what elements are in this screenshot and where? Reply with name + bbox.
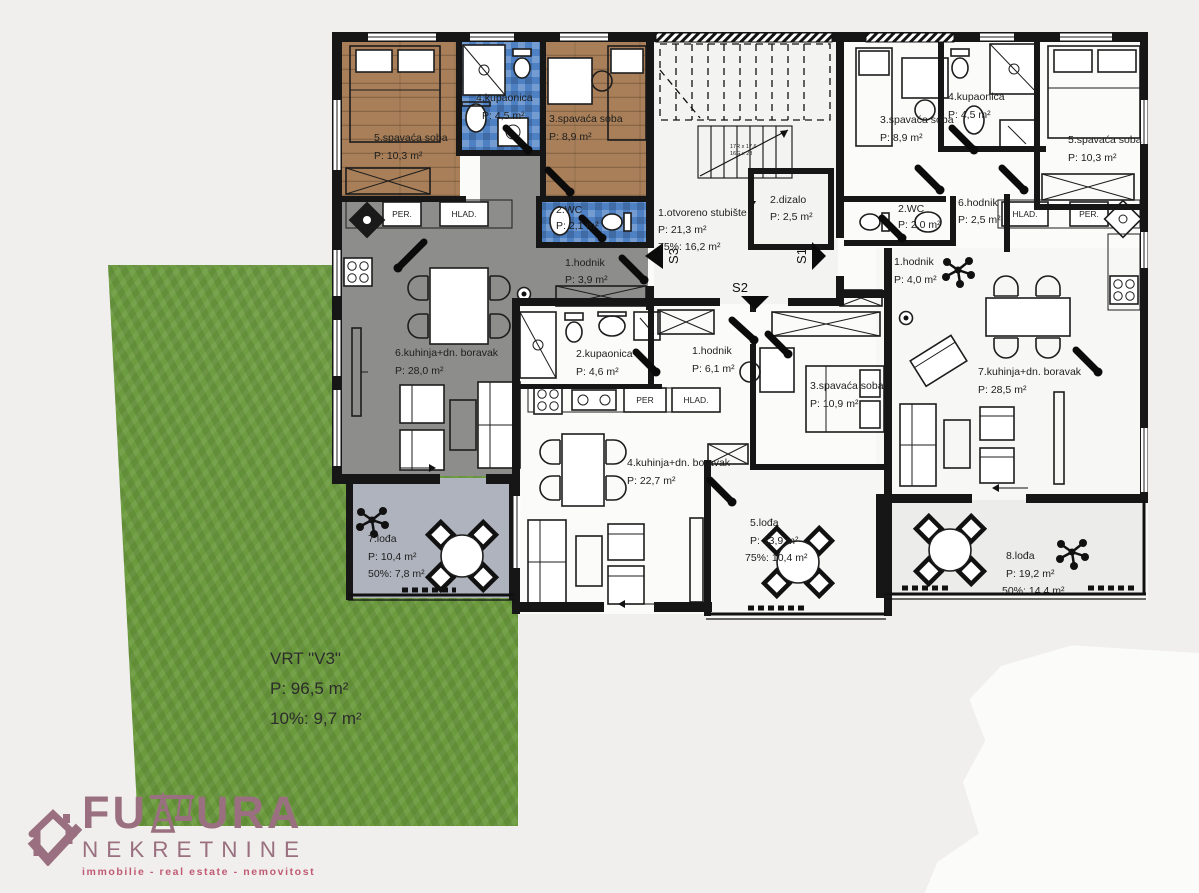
room-c1-area: P: 4,0 m² [894, 274, 937, 286]
toilet-icon [602, 213, 631, 231]
washer-icon [634, 312, 660, 340]
garden-label: VRT "V3" P: 96,5 m² 10%: 9,7 m² [270, 649, 362, 728]
room-c2-area: P: 2,0 m² [898, 219, 941, 231]
garden-area: P: 96,5 m² [270, 679, 349, 698]
logo-text: FU URA NEKRETNINE immobilie - real estat… [82, 790, 315, 878]
room-s1-pct: 75%: 16,2 m² [658, 241, 721, 253]
room-c6-area: P: 2,5 m² [958, 214, 1001, 226]
room-b5-area: P: 13,9 m² [750, 535, 799, 547]
room-a6-area: P: 28,0 m² [395, 365, 444, 377]
room-s1-name: 1.otvoreno stubište [658, 207, 747, 219]
room-a7-name: 7.lođa [368, 533, 397, 545]
room-b3-area: P: 10,9 m² [810, 398, 859, 410]
room-s2-name: 2.dizalo [770, 194, 806, 206]
brand-name: FU URA [82, 790, 315, 835]
armchair-icon [980, 448, 1014, 483]
s2-label: S2 [732, 280, 748, 295]
window-icon [334, 100, 341, 170]
armchair-icon [400, 385, 444, 423]
room-c3-area: P: 8,9 m² [880, 132, 923, 144]
room-a7-area: P: 10,4 m² [368, 551, 417, 563]
room-c2-name: 2.WC [898, 203, 925, 215]
room-c4-name: 4.kupaonica [948, 91, 1005, 103]
window-icon [560, 34, 608, 41]
armchair-icon [400, 430, 444, 470]
room-b3-name: 3.spavaća soba [810, 380, 884, 392]
sofa-icon [528, 520, 566, 604]
room-c4-area: P: 4,5 m² [948, 109, 991, 121]
window-icon [470, 34, 514, 41]
room-c7-name: 7.kuhinja+dn. boravak [978, 366, 1082, 378]
armchair-icon [608, 524, 644, 560]
logo-crane-icon [149, 792, 195, 834]
sink-icon [598, 312, 626, 336]
shower-icon [990, 44, 1038, 94]
s1-label: S1 [794, 248, 809, 264]
futura-logo: FU URA NEKRETNINE immobilie - real estat… [24, 790, 315, 878]
shower-icon [520, 312, 556, 378]
room-b4-area: P: 22,7 m² [627, 475, 676, 487]
room-a3-area: P: 8,9 m² [549, 131, 592, 143]
washer-icon [1000, 120, 1036, 150]
room-b5-name: 5.lođa [750, 517, 779, 529]
brand-tagline: immobilie - real estate - nemovitost [82, 866, 315, 878]
room-b2-area: P: 4,6 m² [576, 366, 619, 378]
toilet-icon [565, 313, 583, 342]
room-c7-area: P: 28,5 m² [978, 384, 1027, 396]
room-a2-name: 2.WC [556, 204, 583, 216]
room-a3-name: 3.spavaća soba [549, 113, 623, 125]
room-a4-area: P: 4,5 m² [482, 110, 525, 122]
room-c5-name: 5.spavaća soba [1068, 134, 1142, 146]
window-icon [334, 390, 341, 466]
room-a5-area: P: 10,3 m² [374, 150, 423, 162]
window-icon [1060, 34, 1112, 41]
fridge-label: HLAD. [1012, 209, 1037, 219]
brand-suffix: URA [196, 790, 303, 835]
room-b2-name: 2.kupaonica [576, 348, 633, 360]
window-icon [334, 320, 341, 376]
room-s2-area: P: 2,5 m² [770, 211, 813, 223]
room-a7-pct: 50%: 7,8 m² [368, 568, 425, 580]
shower-icon [463, 45, 505, 95]
room-c8-pct: 50%: 14,4 m² [1002, 585, 1065, 597]
fridge-label: HLAD. [683, 395, 708, 405]
garden-title: VRT "V3" [270, 649, 341, 668]
room-c6-name: 6.hodnik [958, 197, 998, 209]
room-b1-area: P: 6,1 m² [692, 363, 735, 375]
stove-icon [534, 386, 562, 414]
pantry-label: PER. [392, 209, 412, 219]
brand-prefix: FU [82, 790, 148, 835]
room-a2-area: P: 2,1 m² [556, 220, 599, 232]
room-b4-name: 4.kuhinja+dn. boravak [627, 457, 731, 469]
pantry-label: PER. [1079, 209, 1099, 219]
room-s1-area: P: 21,3 m² [658, 224, 707, 236]
room-c8-name: 8.lođa [1006, 550, 1035, 562]
window-icon [1141, 232, 1148, 268]
room-a6-name: 6.kuhinja+dn. boravak [395, 347, 499, 359]
window-icon [334, 250, 341, 296]
room-a1-name: 1.hodnik [565, 257, 605, 269]
stove-icon [1110, 276, 1138, 304]
window-icon [980, 34, 1014, 41]
window-icon [514, 496, 521, 568]
room-b5-pct: 75%: 10,4 m² [745, 552, 808, 564]
armchair-icon [980, 407, 1014, 440]
pantry-label: PER [636, 395, 653, 405]
room-c5-area: P: 10,3 m² [1068, 152, 1117, 164]
toilet-icon [513, 49, 531, 78]
room-c1-name: 1.hodnik [894, 256, 934, 268]
toilet-icon [951, 49, 969, 78]
brand-subtitle: NEKRETNINE [82, 837, 315, 863]
floorplan-page: { "colors":{"bg":"#f0efed","wall":"#1616… [0, 0, 1199, 893]
room-a5-name: 5.spavaća soba [374, 132, 448, 144]
stair-dim1: 17R x 17,6 [730, 144, 757, 150]
window-icon [1141, 428, 1148, 492]
logo-house-icon [24, 804, 82, 866]
window-icon [1141, 100, 1148, 144]
garden-pct: 10%: 9,7 m² [270, 709, 362, 728]
sofa-icon [900, 404, 936, 486]
room-b1-name: 1.hodnik [692, 345, 732, 357]
room-a4-name: 4.kupaonica [476, 92, 533, 104]
floor-plan: S3 S2 S1 17R x 17,6 16G x 28 5.spavaća s… [0, 0, 1199, 893]
window-icon [368, 34, 436, 41]
fridge-label: HLAD. [451, 209, 476, 219]
room-a1-area: P: 3,9 m² [565, 274, 608, 286]
room-c8-area: P: 19,2 m² [1006, 568, 1055, 580]
stair-dim2: 16G x 28 [730, 151, 752, 157]
room-c3-name: 3.spavaća soba [880, 114, 954, 126]
armchair-icon [608, 566, 644, 604]
